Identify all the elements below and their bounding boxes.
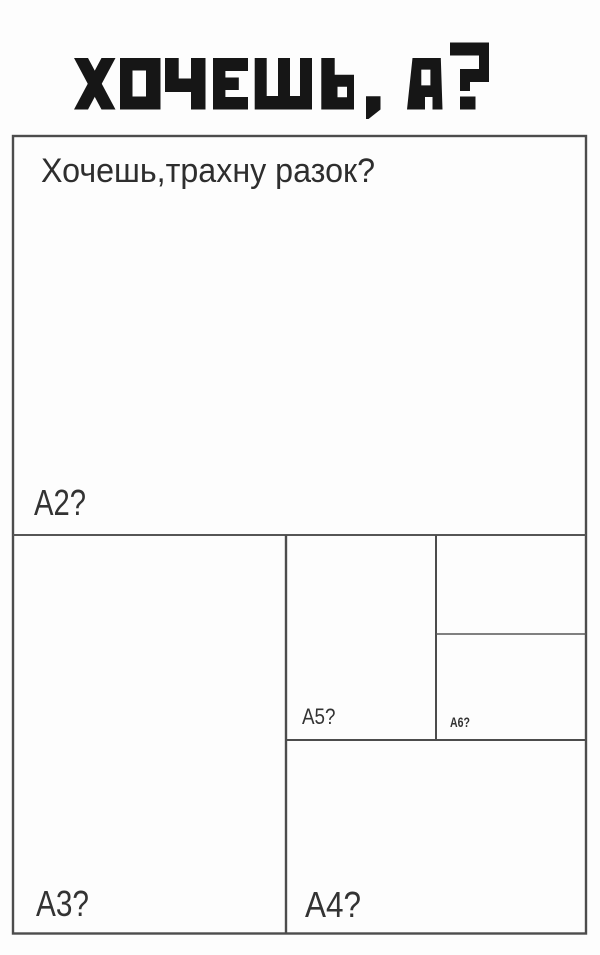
svg-text:А4?: А4? <box>305 884 361 925</box>
svg-text:А3?: А3? <box>36 883 89 924</box>
svg-text:А5?: А5? <box>302 704 336 729</box>
svg-text:А2?: А2? <box>34 482 86 523</box>
svg-text:А6?: А6? <box>450 714 470 730</box>
svg-text:Хочешь,трахну разок?: Хочешь,трахну разок? <box>41 152 375 190</box>
